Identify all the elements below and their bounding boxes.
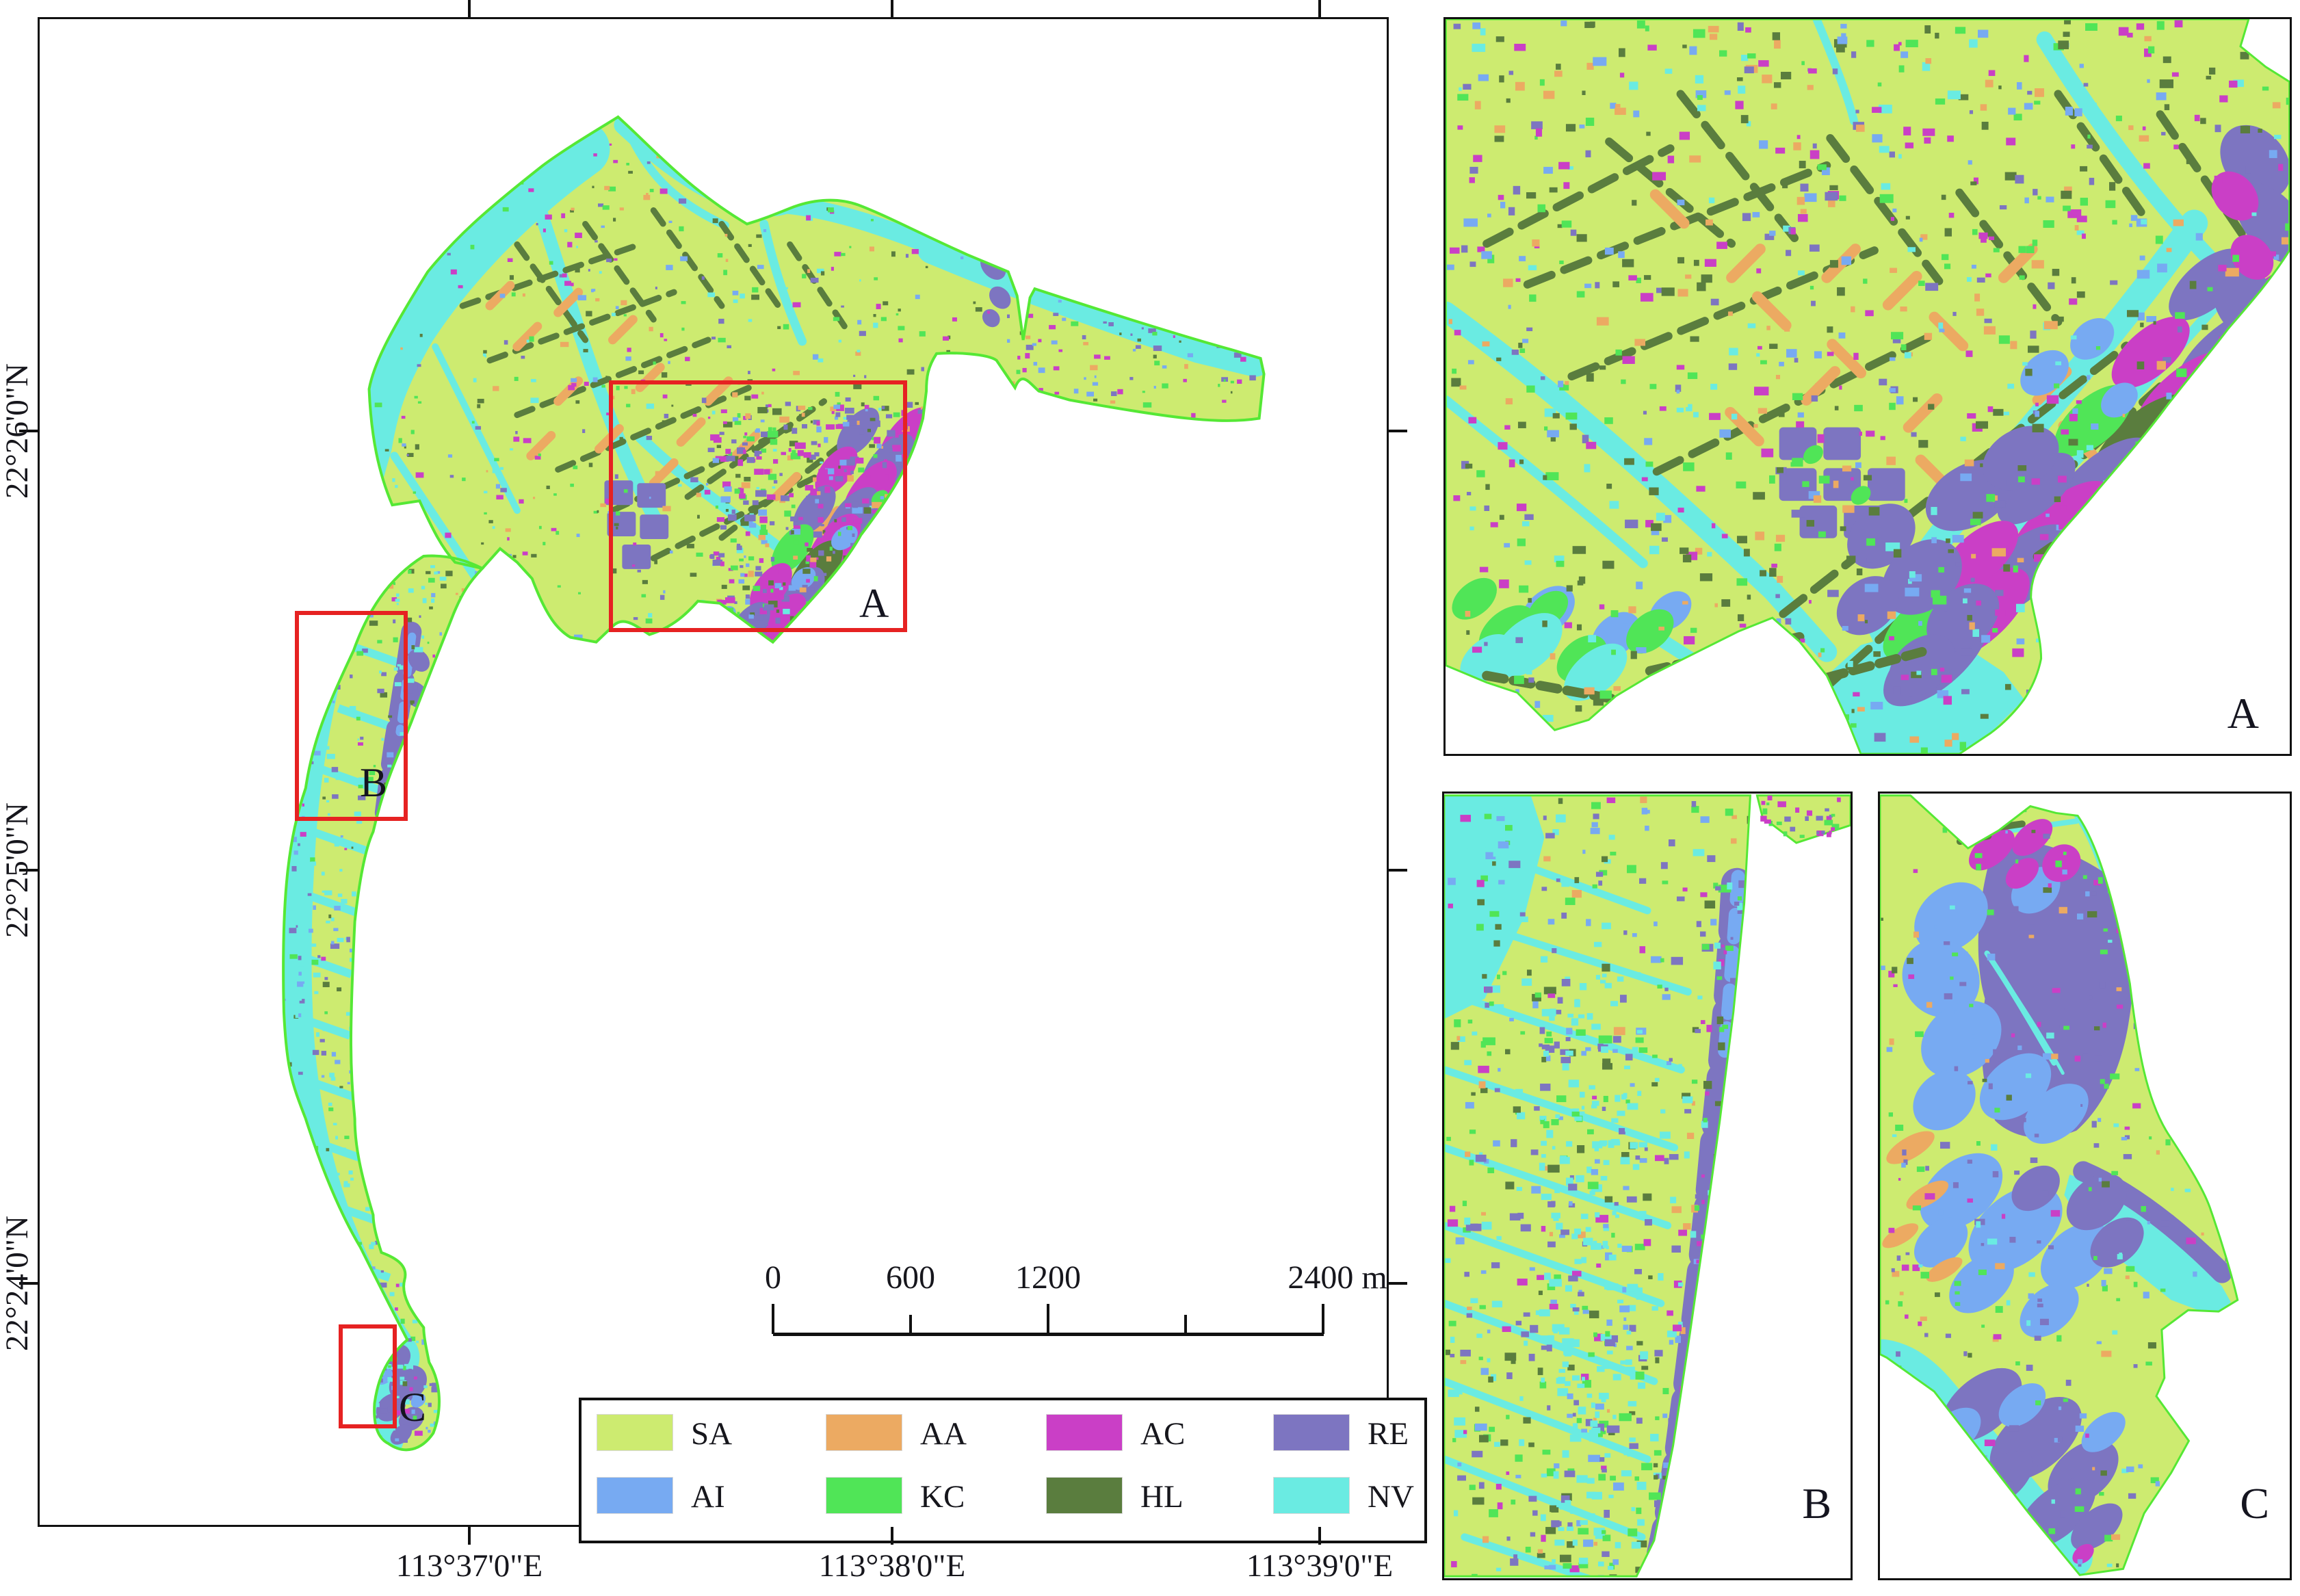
region-label-a: A (859, 580, 889, 627)
main-map-frame: A B C 0 600 1200 2400 m SA AA (38, 17, 1389, 1527)
legend-swatch-kc (826, 1477, 902, 1514)
panel-b-frame: B (1442, 792, 1853, 1580)
legend-label-aa: AA (920, 1415, 967, 1452)
panel-label-a: A (2227, 688, 2259, 739)
panel-label-c: C (2240, 1478, 2269, 1529)
legend-label-re: RE (1368, 1415, 1409, 1452)
region-label-c: C (399, 1384, 426, 1431)
scale-bar: 0 600 1200 2400 m (759, 1259, 1348, 1341)
scale-bar-tick (909, 1315, 912, 1334)
legend-swatch-ai (597, 1477, 673, 1514)
x-axis-tick-top (468, 0, 471, 18)
x-axis-tick-top (1318, 0, 1321, 18)
legend-swatch-hl (1046, 1477, 1123, 1514)
scale-bar-tick (1322, 1304, 1324, 1334)
scale-bar-tick (1184, 1315, 1187, 1334)
legend-swatch-re (1273, 1414, 1350, 1451)
scale-label-2400m: 2400 m (1235, 1259, 1440, 1296)
x-axis-label: 113°39'0"E (1149, 1547, 1491, 1584)
region-box-c (339, 1324, 397, 1428)
x-axis-label: 113°38'0"E (721, 1547, 1063, 1584)
legend-swatch-sa (597, 1414, 673, 1451)
legend-label-kc: KC (920, 1478, 965, 1515)
legend-swatch-nv (1273, 1477, 1350, 1514)
panel-c-canvas (1880, 794, 2290, 1578)
figure: A B C 0 600 1200 2400 m SA AA (0, 0, 2300, 1596)
x-axis-tick-bottom (468, 1527, 471, 1545)
x-axis-tick-top (891, 0, 893, 18)
y-axis-label: 22°25'0"N (0, 727, 34, 1014)
panel-a-frame: A (1443, 17, 2292, 756)
scale-bar-tick (772, 1304, 774, 1334)
x-axis-label: 113°37'0"E (298, 1547, 640, 1584)
legend-label-ai: AI (691, 1478, 725, 1515)
scale-bar-tick (1047, 1304, 1049, 1334)
x-axis-tick-bottom (1318, 1527, 1321, 1545)
y-axis-tick-right (1389, 430, 1407, 432)
legend-label-sa: SA (691, 1415, 732, 1452)
panel-b-canvas (1444, 794, 1851, 1578)
region-label-b: B (360, 759, 387, 807)
legend-label-ac: AC (1140, 1415, 1185, 1452)
scale-label-1200: 1200 (945, 1259, 1151, 1296)
legend-label-hl: HL (1140, 1478, 1184, 1515)
y-axis-label: 22°26'0"N (0, 287, 34, 575)
panel-a-canvas (1446, 19, 2290, 754)
region-box-b (295, 611, 408, 821)
panel-label-b: B (1802, 1478, 1831, 1529)
panel-c-frame: C (1878, 792, 2292, 1580)
y-axis-label: 22°24'0"N (0, 1140, 34, 1427)
legend-label-nv: NV (1368, 1478, 1414, 1515)
legend-swatch-aa (826, 1414, 902, 1451)
legend: SA AA AC RE AI KC (579, 1398, 1427, 1543)
x-axis-tick-bottom (891, 1527, 893, 1545)
y-axis-tick-right (1389, 869, 1407, 872)
y-axis-tick-right (1389, 1282, 1407, 1285)
legend-swatch-ac (1046, 1414, 1123, 1451)
